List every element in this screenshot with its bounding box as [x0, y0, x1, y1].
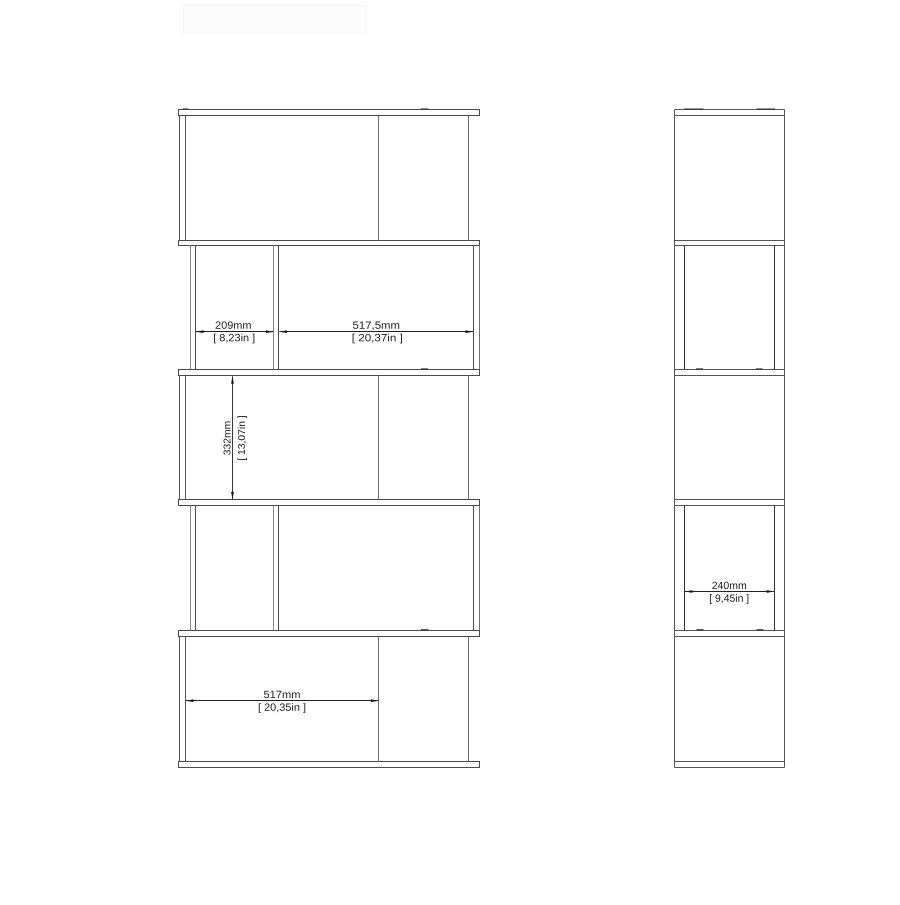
- svg-text:[ 20,35in ]: [ 20,35in ]: [258, 702, 306, 714]
- svg-text:[ 9,45in ]: [ 9,45in ]: [709, 593, 749, 605]
- svg-text:[ 20,37in ]: [ 20,37in ]: [352, 332, 403, 344]
- svg-text:332mm: 332mm: [222, 421, 234, 456]
- svg-text:209mm: 209mm: [215, 320, 252, 332]
- svg-text:[ 8,23in ]: [ 8,23in ]: [213, 332, 255, 344]
- svg-text:517mm: 517mm: [263, 689, 300, 701]
- svg-text:517,5mm: 517,5mm: [353, 320, 401, 332]
- svg-text:[ 13,07in ]: [ 13,07in ]: [236, 415, 248, 461]
- svg-text:240mm: 240mm: [712, 580, 747, 592]
